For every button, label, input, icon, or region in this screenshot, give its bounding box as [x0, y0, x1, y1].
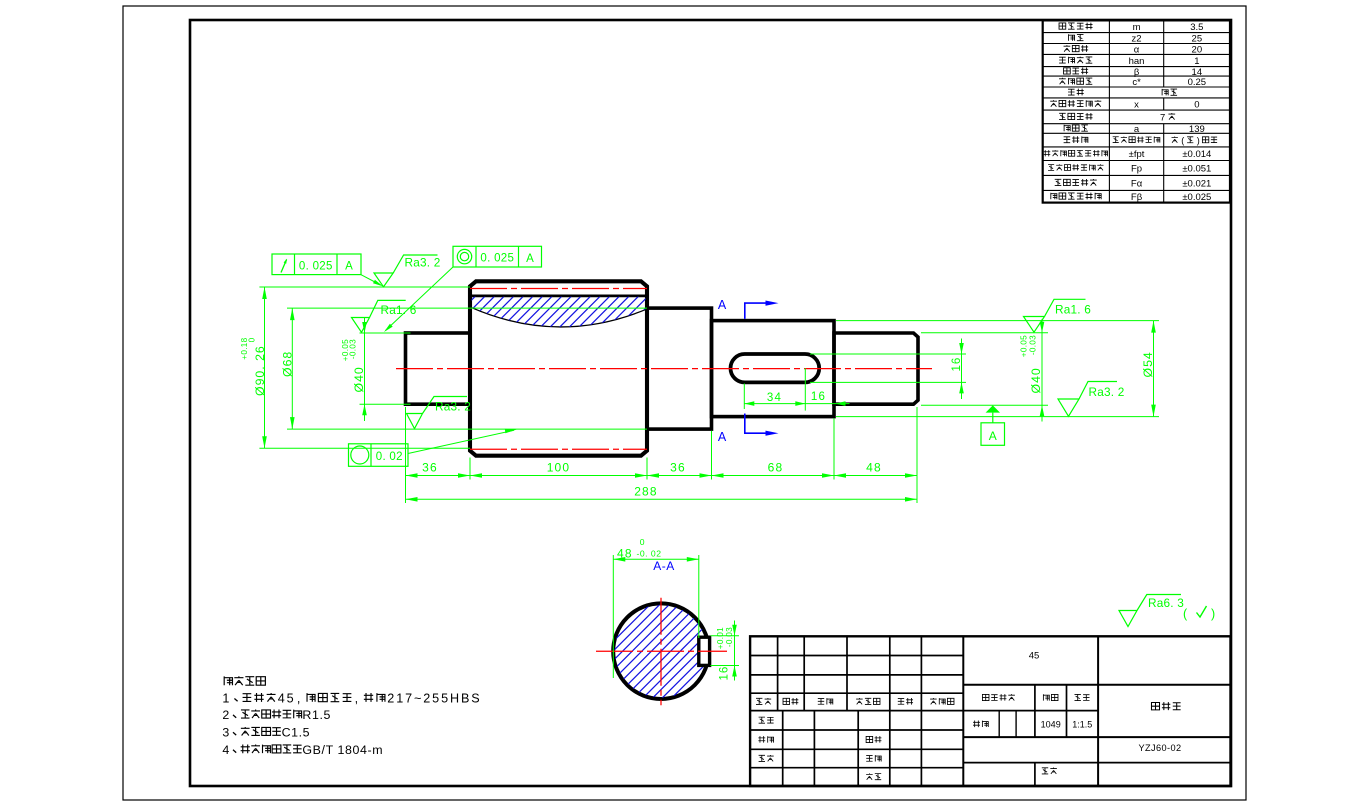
svg-text:A: A — [345, 261, 353, 273]
svg-text:Fp: Fp — [1131, 163, 1142, 174]
svg-text:16: 16 — [951, 357, 963, 372]
svg-text:36: 36 — [670, 460, 686, 474]
svg-text:68: 68 — [768, 460, 784, 474]
svg-text:a: a — [1134, 124, 1140, 135]
svg-text:34: 34 — [767, 392, 782, 404]
svg-text:1: 1 — [1194, 56, 1199, 67]
svg-text:,: , — [297, 692, 301, 706]
svg-text:3: 3 — [222, 725, 230, 739]
svg-text:±fpt: ±fpt — [1129, 149, 1145, 160]
svg-text:A: A — [989, 429, 997, 443]
svg-text:0. 02: 0. 02 — [376, 451, 403, 463]
svg-text:0. 025: 0. 025 — [480, 253, 514, 265]
svg-text:100: 100 — [547, 460, 571, 474]
svg-text:1:1.5: 1:1.5 — [1072, 719, 1092, 729]
svg-text:R1.5: R1.5 — [302, 708, 331, 722]
svg-text:48: 48 — [617, 546, 633, 560]
svg-text:,: , — [355, 692, 359, 706]
svg-text:4: 4 — [222, 743, 230, 757]
svg-text:+0.01: +0.01 — [716, 627, 725, 649]
svg-text:0: 0 — [1194, 100, 1199, 111]
svg-text:-0. 02: -0. 02 — [637, 548, 662, 558]
svg-text:Ra6. 3: Ra6. 3 — [1148, 596, 1184, 610]
svg-text:α: α — [1134, 44, 1140, 55]
svg-text:m: m — [1133, 22, 1141, 33]
svg-text:7: 7 — [1160, 112, 1165, 123]
svg-text:0: 0 — [640, 537, 645, 547]
svg-text:Fβ: Fβ — [1131, 192, 1143, 203]
svg-text:A: A — [526, 253, 534, 265]
svg-text:±0.021: ±0.021 — [1182, 178, 1211, 189]
svg-text:1049: 1049 — [1041, 719, 1061, 729]
svg-text:-0.03: -0.03 — [1028, 335, 1037, 355]
svg-text:-0.03: -0.03 — [725, 627, 734, 647]
svg-text:36: 36 — [422, 460, 438, 474]
svg-text:): ) — [1197, 136, 1200, 146]
svg-text:0: 0 — [248, 337, 257, 342]
svg-text:GB/T 1804-m: GB/T 1804-m — [302, 743, 383, 757]
svg-text:(: ( — [1181, 136, 1184, 146]
svg-text:288: 288 — [634, 485, 658, 499]
svg-text:YZJ60-02: YZJ60-02 — [1138, 743, 1181, 753]
svg-text:z2: z2 — [1132, 34, 1142, 45]
svg-text:16: 16 — [811, 391, 826, 403]
svg-text:45: 45 — [278, 692, 296, 706]
svg-text:Fα: Fα — [1131, 178, 1143, 189]
svg-text:48: 48 — [866, 460, 882, 474]
svg-text:A-A: A-A — [653, 559, 675, 573]
svg-text:C1.5: C1.5 — [282, 725, 311, 739]
svg-text:Ø68: Ø68 — [281, 351, 295, 377]
svg-text:20: 20 — [1192, 44, 1203, 55]
svg-text:Ra1. 6: Ra1. 6 — [1055, 303, 1091, 317]
svg-text:1: 1 — [222, 692, 231, 706]
svg-text:Ra3. 2: Ra3. 2 — [405, 256, 441, 270]
svg-text:Ø54: Ø54 — [1141, 351, 1155, 377]
svg-text:±0.025: ±0.025 — [1182, 192, 1211, 203]
svg-text:3.5: 3.5 — [1190, 22, 1203, 33]
svg-text:-0.03: -0.03 — [349, 339, 358, 359]
svg-text:0. 025: 0. 025 — [299, 260, 333, 272]
svg-text:Ra1. 6: Ra1. 6 — [381, 303, 417, 317]
svg-text:): ) — [1211, 607, 1215, 621]
svg-text:+0.05: +0.05 — [1020, 335, 1029, 357]
svg-text:A: A — [718, 298, 727, 312]
svg-text:Ø40: Ø40 — [352, 366, 366, 392]
svg-text:Ra3. 2: Ra3. 2 — [1089, 385, 1125, 399]
svg-text:A: A — [718, 430, 727, 444]
svg-text:±0.014: ±0.014 — [1182, 149, 1211, 160]
svg-text:45: 45 — [1029, 651, 1040, 662]
svg-text:Ra3. 2: Ra3. 2 — [435, 400, 471, 414]
svg-text:16: 16 — [719, 666, 731, 681]
svg-text:x: x — [1134, 100, 1139, 111]
svg-text:Ø40: Ø40 — [1029, 367, 1043, 393]
svg-text:c*: c* — [1132, 77, 1141, 88]
svg-text:217~255HBS: 217~255HBS — [387, 692, 481, 706]
svg-text:±0.051: ±0.051 — [1182, 163, 1211, 174]
svg-text:2: 2 — [222, 708, 230, 722]
svg-text:0.25: 0.25 — [1188, 77, 1207, 88]
svg-text:han: han — [1129, 56, 1145, 67]
svg-text:Ø90. 26: Ø90. 26 — [253, 345, 267, 396]
svg-text:139: 139 — [1189, 124, 1205, 135]
svg-text:25: 25 — [1192, 34, 1203, 45]
